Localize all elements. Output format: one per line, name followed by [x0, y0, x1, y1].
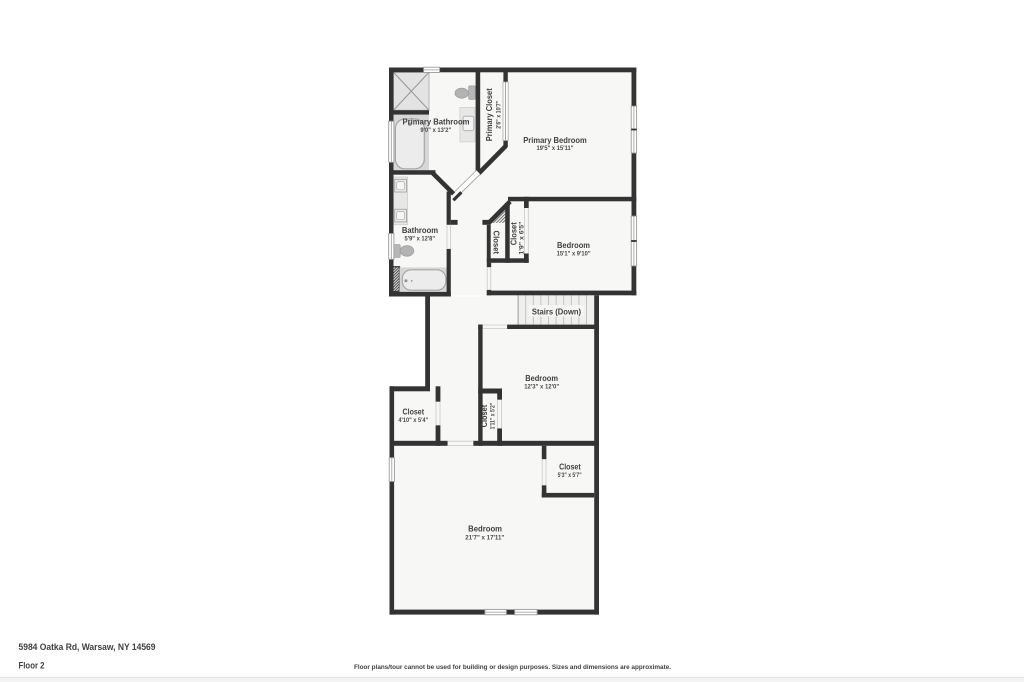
svg-text:Floor 2: Floor 2 — [19, 660, 45, 670]
svg-text:Primary Bathroom: Primary Bathroom — [403, 116, 470, 126]
svg-text:Closet: Closet — [403, 407, 425, 417]
svg-text:Bedroom: Bedroom — [525, 373, 558, 383]
svg-text:Closet: Closet — [491, 231, 501, 255]
svg-text:5984 Oatka Rd, Warsaw, NY 1456: 5984 Oatka Rd, Warsaw, NY 14569 — [19, 642, 156, 652]
svg-text:Closet: Closet — [479, 405, 489, 428]
svg-text:5'9" x 12'8": 5'9" x 12'8" — [405, 235, 436, 242]
svg-text:1'9" x 6'5": 1'9" x 6'5" — [519, 222, 526, 255]
svg-text:Primary Bedroom: Primary Bedroom — [523, 135, 587, 145]
svg-text:Closet: Closet — [508, 222, 518, 245]
svg-text:12'3" x 12'0": 12'3" x 12'0" — [524, 383, 559, 390]
svg-text:Bedroom: Bedroom — [468, 523, 502, 533]
svg-text:21'7" x 17'11": 21'7" x 17'11" — [465, 535, 504, 542]
svg-text:5'3" x 5'7": 5'3" x 5'7" — [558, 472, 582, 479]
svg-text:19'5" x 15'11": 19'5" x 15'11" — [537, 145, 574, 152]
svg-text:Closet: Closet — [559, 461, 581, 471]
svg-text:Bedroom: Bedroom — [557, 240, 590, 250]
svg-text:Bathroom: Bathroom — [402, 225, 439, 235]
svg-text:Primary Closet: Primary Closet — [484, 88, 494, 141]
svg-text:4'10" x 5'4": 4'10" x 5'4" — [398, 417, 428, 424]
svg-text:9'0" x 13'2": 9'0" x 13'2" — [420, 127, 451, 134]
svg-text:Floor plans/tour cannot be use: Floor plans/tour cannot be used for buil… — [354, 664, 671, 671]
svg-text:15'1" x 9'10": 15'1" x 9'10" — [557, 251, 591, 258]
svg-text:2'6" x 10'7": 2'6" x 10'7" — [496, 101, 503, 129]
svg-text:1'11" x 5'2": 1'11" x 5'2" — [490, 403, 497, 430]
svg-text:Stairs (Down): Stairs (Down) — [532, 306, 581, 316]
